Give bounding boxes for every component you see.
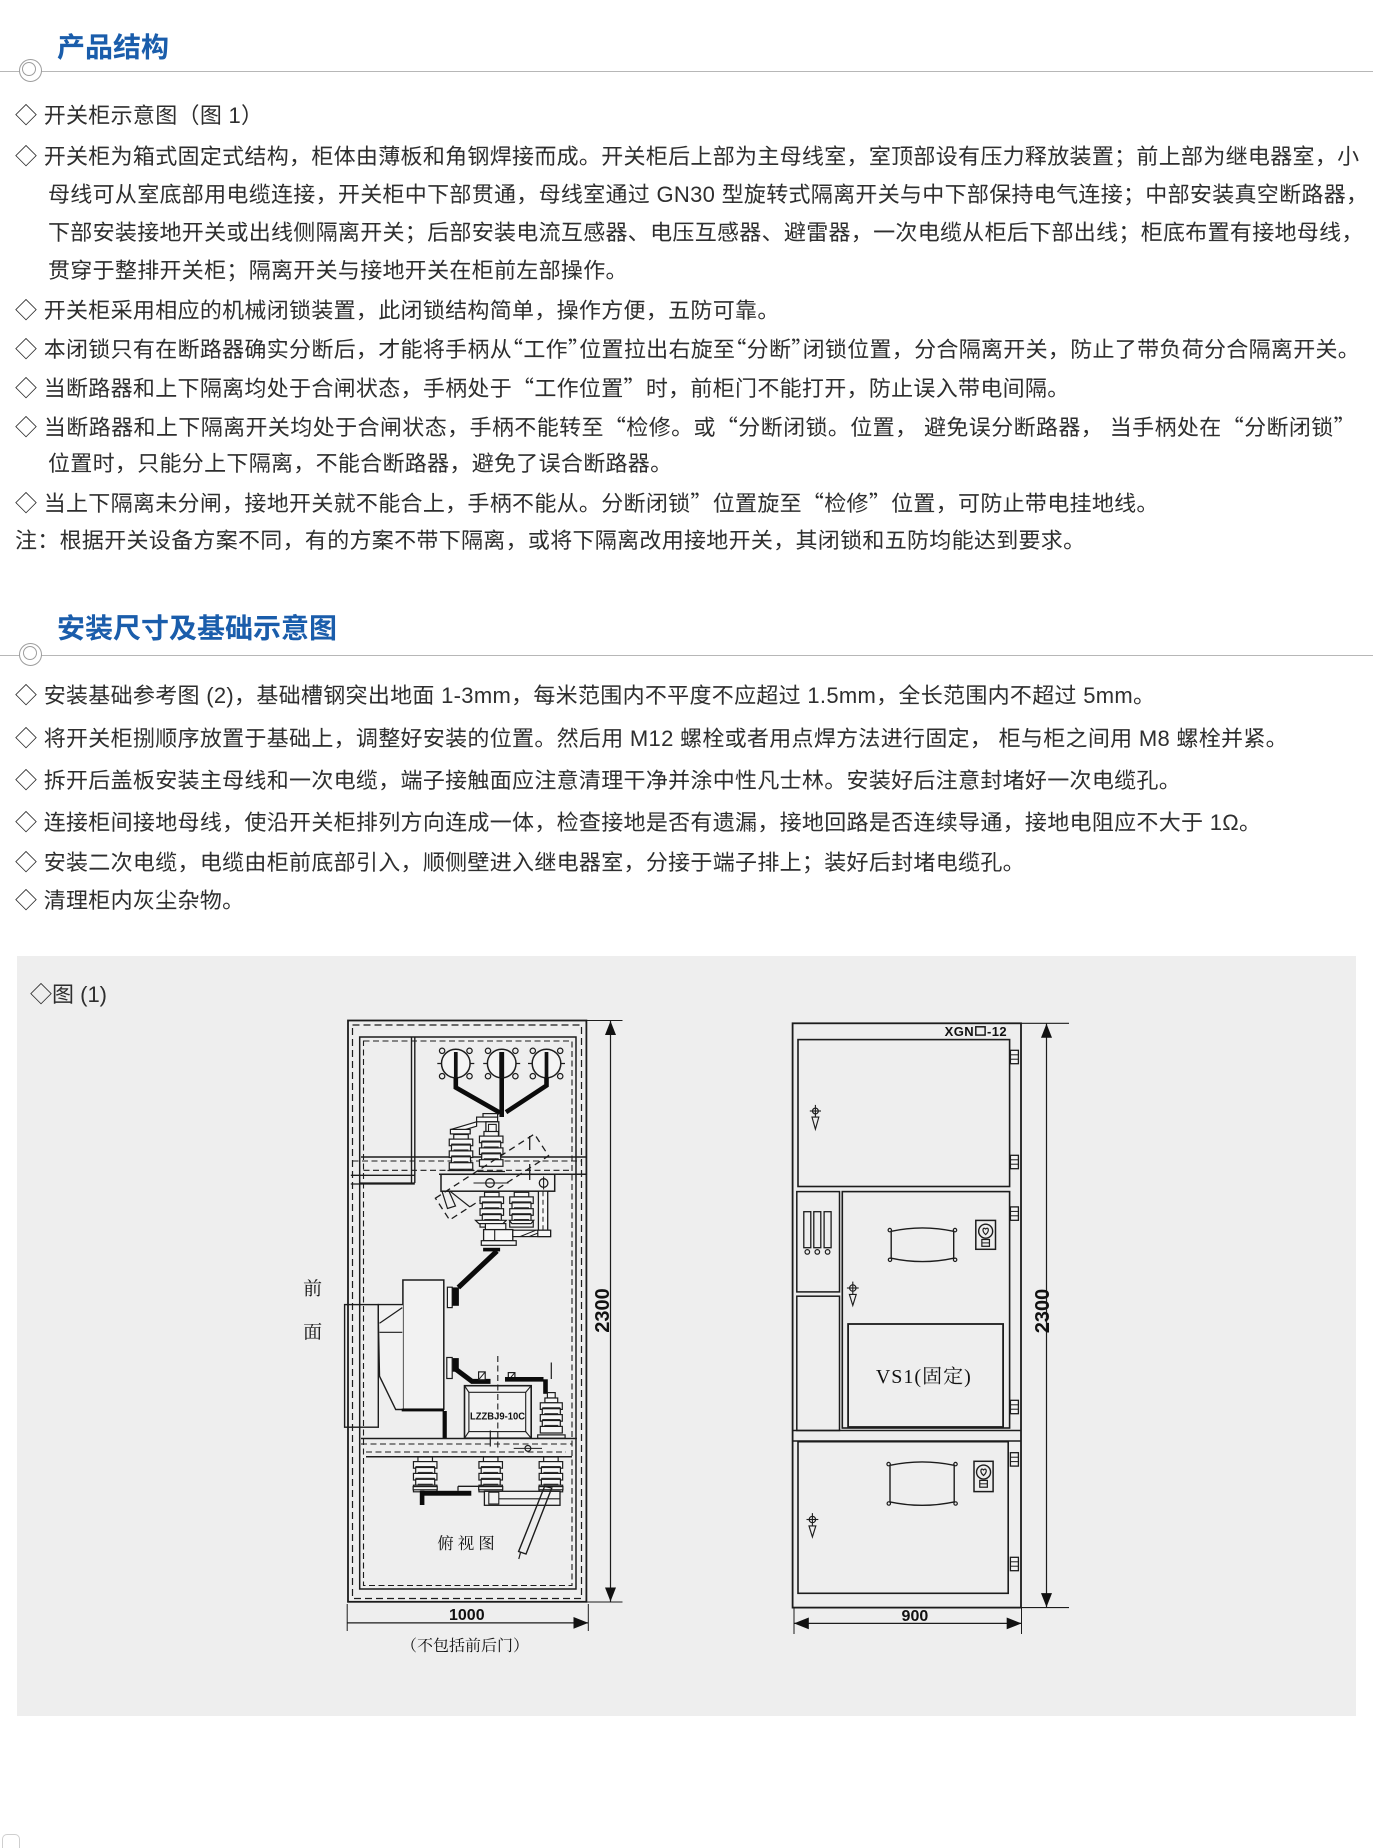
svg-text:面: 面 bbox=[303, 1318, 322, 1345]
svg-text:900: 900 bbox=[902, 1608, 929, 1625]
svg-text:-12: -12 bbox=[987, 1024, 1007, 1039]
svg-text:2300: 2300 bbox=[592, 1288, 614, 1333]
svg-text:2300: 2300 bbox=[1032, 1289, 1054, 1334]
svg-text:俯视图: 俯视图 bbox=[437, 1530, 499, 1554]
svg-text:VS1(固定): VS1(固定) bbox=[876, 1360, 972, 1389]
svg-text:XGN: XGN bbox=[945, 1024, 974, 1039]
svg-text:前: 前 bbox=[303, 1274, 322, 1301]
svg-text:（不包括前后门）: （不包括前后门） bbox=[401, 1633, 529, 1656]
svg-text:1000: 1000 bbox=[449, 1607, 485, 1624]
